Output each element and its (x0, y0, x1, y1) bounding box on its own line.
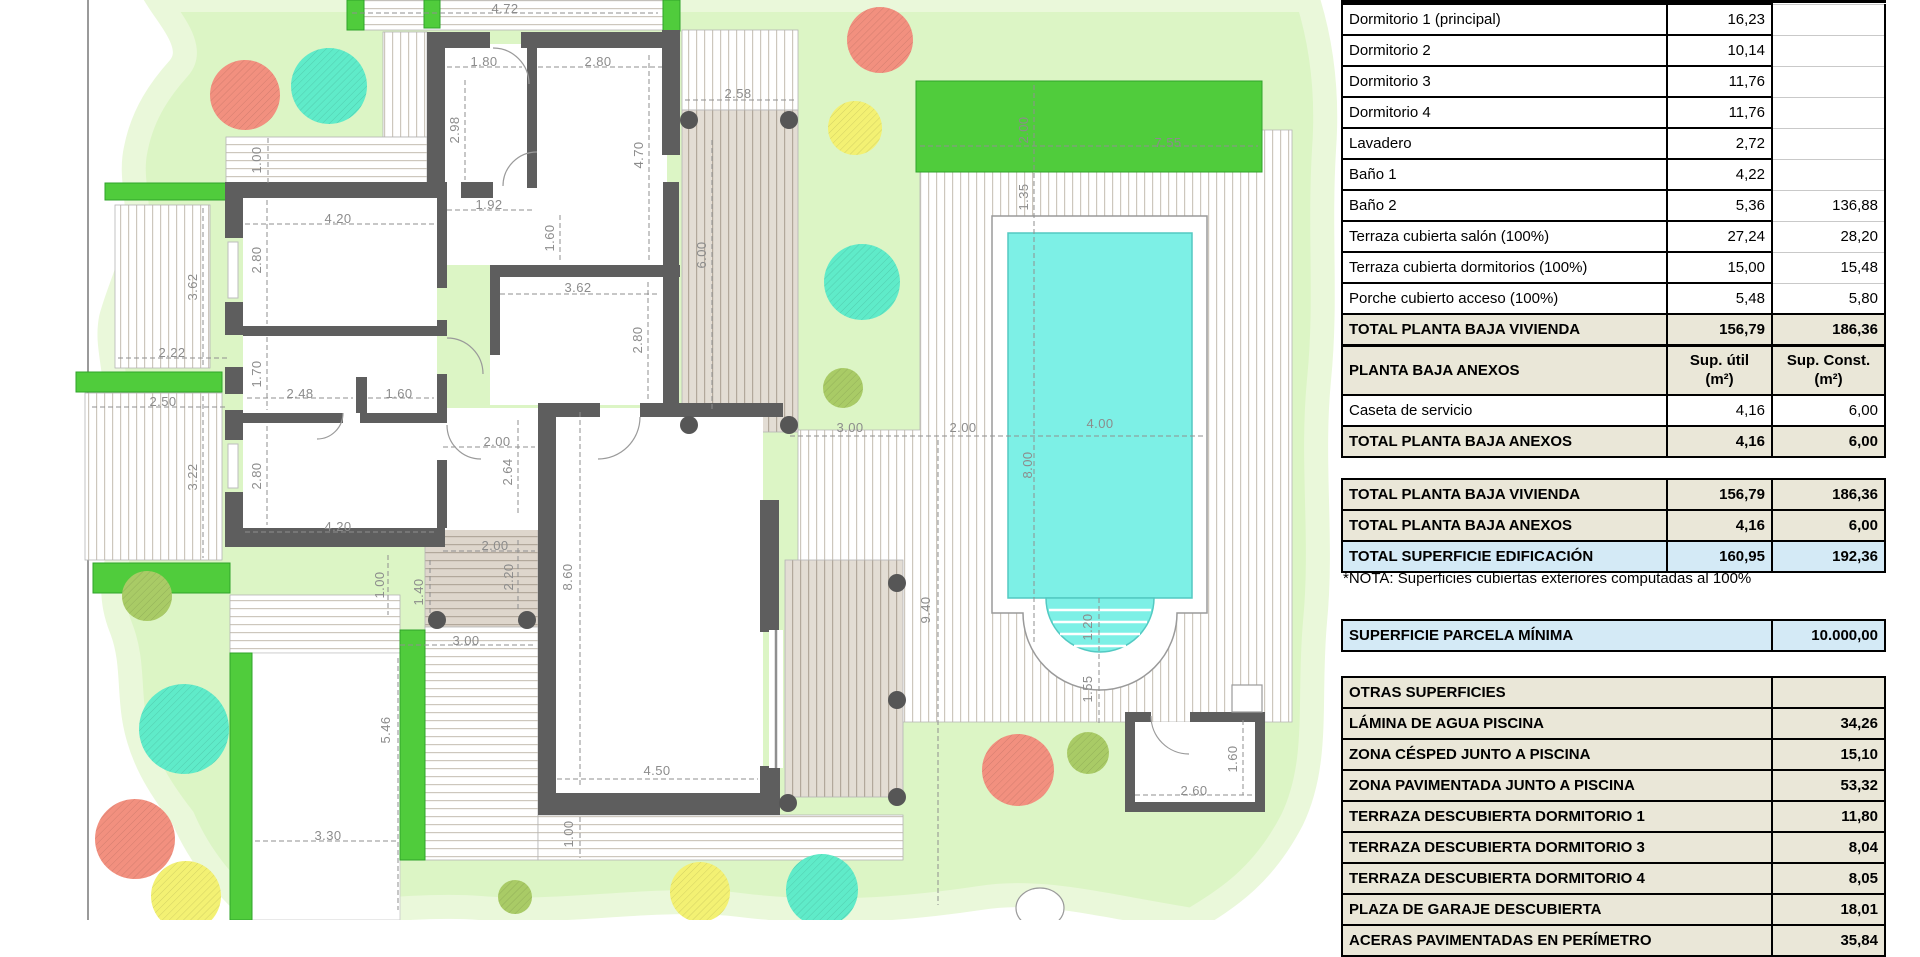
dimension-label: 2.80 (249, 463, 264, 490)
table-superficie-parcela: SUPERFICIE PARCELA MÍNIMA10.000,00 (1341, 619, 1886, 652)
dimension-label: 2.20 (501, 564, 516, 591)
table-cell: 2,72 (1667, 128, 1772, 159)
tree-hatch (982, 734, 1054, 806)
tree-hatch (828, 101, 882, 155)
table-cell: TERRAZA DESCUBIERTA DORMITORIO 4 (1342, 863, 1772, 894)
dimension-label: 1.70 (249, 361, 264, 388)
dimension-label: 2.50 (150, 394, 177, 409)
table-row: TOTAL PLANTA BAJA ANEXOS4,166,00 (1342, 426, 1885, 457)
post (888, 691, 906, 709)
table-cell: 160,95 (1667, 541, 1772, 572)
table-cell: ACERAS PAVIMENTADAS EN PERÍMETRO (1342, 925, 1772, 956)
table-cell: Baño 1 (1342, 159, 1667, 190)
table-cell: 15,10 (1772, 739, 1885, 770)
table-cell (1772, 128, 1885, 159)
dimension-label: 1.00 (372, 572, 387, 599)
table-cell: Dormitorio 3 (1342, 66, 1667, 97)
post (518, 611, 536, 629)
table-row: OTRAS SUPERFICIES (1342, 677, 1885, 708)
table-row: Lavadero2,72 (1342, 128, 1885, 159)
table-cell (1772, 677, 1885, 708)
table-row: TOTAL SUPERFICIE EDIFICACIÓN160,95192,36 (1342, 541, 1885, 572)
dimension-label: 2.58 (725, 86, 752, 101)
table-cell: 11,76 (1667, 97, 1772, 128)
table-cell: Sup. Const. (m²) (1772, 346, 1885, 395)
floorplan-sheet: { "plan": { "colors": { "garden": "#dcf5… (0, 0, 1920, 920)
dimension-label: 2.80 (249, 247, 264, 274)
table-row: ZONA CÉSPED JUNTO A PISCINA15,10 (1342, 739, 1885, 770)
dimension-label: 4.70 (631, 142, 646, 169)
dimension-label: 1.40 (411, 579, 426, 606)
table-row: Terraza cubierta dormitorios (100%)15,00… (1342, 252, 1885, 283)
table-cell: 16,23 (1667, 4, 1772, 35)
tree-hatch (210, 60, 280, 130)
dimension-label: 1.60 (1225, 746, 1240, 773)
table-row: Dormitorio 1 (principal)16,23 (1342, 4, 1885, 35)
table-cell: TOTAL PLANTA BAJA ANEXOS (1342, 426, 1667, 457)
table-cell: 4,22 (1667, 159, 1772, 190)
table-cell: 186,36 (1772, 479, 1885, 510)
table-cell: 156,79 (1667, 479, 1772, 510)
table-cell: Baño 2 (1342, 190, 1667, 221)
table-cell: 27,24 (1667, 221, 1772, 252)
table-cell: 10.000,00 (1772, 620, 1885, 651)
dimension-label: 4.72 (492, 1, 519, 16)
dimension-label: 8.00 (1020, 452, 1035, 479)
table-row: ZONA PAVIMENTADA JUNTO A PISCINA53,32 (1342, 770, 1885, 801)
table-cell: 10,14 (1667, 35, 1772, 66)
table-cell: 5,48 (1667, 283, 1772, 314)
dimension-label: 2.80 (630, 327, 645, 354)
table-cell: Terraza cubierta dormitorios (100%) (1342, 252, 1667, 283)
table-cell: 11,80 (1772, 801, 1885, 832)
dimension-label: 1.35 (1016, 184, 1031, 211)
table-cell: Dormitorio 1 (principal) (1342, 4, 1667, 35)
dimension-label: 2.00 (484, 434, 511, 449)
table-cell (1772, 159, 1885, 190)
dimension-label: 1.00 (249, 147, 264, 174)
table-cell: Terraza cubierta salón (100%) (1342, 221, 1667, 252)
dimension-label: 9.40 (918, 597, 933, 624)
table-cell: 5,80 (1772, 283, 1885, 314)
table-cell: 18,01 (1772, 894, 1885, 925)
table-cell: TOTAL PLANTA BAJA VIVIENDA (1342, 314, 1667, 345)
areas-table-panel: Dormitorio 1 (principal)16,23Dormitorio … (1341, 0, 1901, 920)
table-cell: 186,36 (1772, 314, 1885, 345)
table-cell: Dormitorio 2 (1342, 35, 1667, 66)
tree-hatch (1067, 732, 1109, 774)
dimension-label: 6.00 (694, 242, 709, 269)
table-cell: Lavadero (1342, 128, 1667, 159)
post (780, 416, 798, 434)
table-cell (1772, 97, 1885, 128)
table-cell: 6,00 (1772, 426, 1885, 457)
glass-door (769, 630, 783, 768)
dimension-label: 4.20 (325, 519, 352, 534)
dimension-label: 1.60 (386, 386, 413, 401)
table-row: Baño 25,36136,88 (1342, 190, 1885, 221)
dimension-label: 1.00 (561, 821, 576, 848)
table-row: Dormitorio 411,76 (1342, 97, 1885, 128)
table-cell: 4,16 (1667, 426, 1772, 457)
dimension-label: 2.22 (159, 345, 186, 360)
post (888, 574, 906, 592)
table-cell: Sup. útil (m²) (1667, 346, 1772, 395)
table-cell: LÁMINA DE AGUA PISCINA (1342, 708, 1772, 739)
table-cell: TOTAL SUPERFICIE EDIFICACIÓN (1342, 541, 1667, 572)
dimension-label: 2.48 (287, 386, 314, 401)
table-cell: 136,88 (1772, 190, 1885, 221)
table-cell: Porche cubierto acceso (100%) (1342, 283, 1667, 314)
acera-south (538, 815, 903, 860)
table-cell: Caseta de servicio (1342, 395, 1667, 426)
terraza-cubierta-dormitorios (682, 110, 798, 432)
table-cell: 5,36 (1667, 190, 1772, 221)
dimension-label: 4.20 (325, 211, 352, 226)
dimension-label: 2.60 (1181, 783, 1208, 798)
dimension-label: 1.80 (471, 54, 498, 69)
tree-hatch (498, 880, 532, 914)
table-row: TOTAL PLANTA BAJA VIVIENDA156,79186,36 (1342, 314, 1885, 345)
table-cell: SUPERFICIE PARCELA MÍNIMA (1342, 620, 1772, 651)
table-cell: OTRAS SUPERFICIES (1342, 677, 1772, 708)
tree-hatch (823, 368, 863, 408)
table-cell: 156,79 (1667, 314, 1772, 345)
walkway-west-salon (425, 627, 538, 860)
dimension-label: 5.46 (378, 717, 393, 744)
table-cell: 4,16 (1667, 395, 1772, 426)
table-cell: 8,05 (1772, 863, 1885, 894)
caseta-annex (1232, 685, 1262, 712)
table-cell: ZONA PAVIMENTADA JUNTO A PISCINA (1342, 770, 1772, 801)
table-row: TERRAZA DESCUBIERTA DORMITORIO 111,80 (1342, 801, 1885, 832)
dimension-label: 2.00 (950, 420, 977, 435)
dimension-label: 1.60 (542, 225, 557, 252)
table-resumen-totales: TOTAL PLANTA BAJA VIVIENDA156,79186,36TO… (1341, 478, 1886, 573)
table-row: TOTAL PLANTA BAJA VIVIENDA156,79186,36 (1342, 479, 1885, 510)
table-cell: 6,00 (1772, 510, 1885, 541)
post (680, 111, 698, 129)
dimension-label: 2.64 (500, 459, 515, 486)
dimension-label: 2.98 (447, 117, 462, 144)
table-row: SUPERFICIE PARCELA MÍNIMA10.000,00 (1342, 620, 1885, 651)
table-otras-superficies: OTRAS SUPERFICIESLÁMINA DE AGUA PISCINA3… (1341, 676, 1886, 957)
table-cell (1772, 4, 1885, 35)
table-cell: TERRAZA DESCUBIERTA DORMITORIO 3 (1342, 832, 1772, 863)
table-cell: TERRAZA DESCUBIERTA DORMITORIO 1 (1342, 801, 1772, 832)
terraza-dormitorio-3 (85, 393, 222, 560)
table-row: Caseta de servicio4,166,00 (1342, 395, 1885, 426)
table-cell: 11,76 (1667, 66, 1772, 97)
tree-hatch (847, 7, 913, 73)
table-cell: TOTAL PLANTA BAJA VIVIENDA (1342, 479, 1667, 510)
table-cell: 6,00 (1772, 395, 1885, 426)
table-cell: TOTAL PLANTA BAJA ANEXOS (1342, 510, 1667, 541)
table-cell: 15,48 (1772, 252, 1885, 283)
dimension-label: 3.30 (315, 828, 342, 843)
table-cell: 8,04 (1772, 832, 1885, 863)
tree-hatch (670, 862, 730, 920)
table-cell: 15,00 (1667, 252, 1772, 283)
table-cell: Dormitorio 4 (1342, 97, 1667, 128)
dimension-label: 2.80 (585, 54, 612, 69)
tree-hatch (95, 799, 175, 879)
zona-cesped-piscina (916, 81, 1262, 172)
post (780, 111, 798, 129)
dimension-label: 3.62 (565, 280, 592, 295)
table-cell: PLANTA BAJA ANEXOS (1342, 346, 1667, 395)
site-plan-drawing: 4.721.802.802.984.702.581.921.604.202.80… (0, 0, 1341, 920)
table-cell: ZONA CÉSPED JUNTO A PISCINA (1342, 739, 1772, 770)
table-planta-baja-vivienda: Dormitorio 1 (principal)16,23Dormitorio … (1341, 3, 1886, 346)
table-cell (1772, 35, 1885, 66)
table-row: TERRAZA DESCUBIERTA DORMITORIO 38,04 (1342, 832, 1885, 863)
walkway-garage (230, 595, 400, 653)
table-row: Porche cubierto acceso (100%)5,485,80 (1342, 283, 1885, 314)
post (888, 788, 906, 806)
tree-hatch (824, 244, 900, 320)
table-row: Dormitorio 210,14 (1342, 35, 1885, 66)
dimension-label: 3.00 (453, 633, 480, 648)
table-cell: 53,32 (1772, 770, 1885, 801)
table-cell: PLAZA DE GARAJE DESCUBIERTA (1342, 894, 1772, 925)
tree-hatch (122, 571, 172, 621)
table-row: ACERAS PAVIMENTADAS EN PERÍMETRO35,84 (1342, 925, 1885, 956)
table-cell: 34,26 (1772, 708, 1885, 739)
table-row: Dormitorio 311,76 (1342, 66, 1885, 97)
dimension-label: 8.60 (560, 564, 575, 591)
table-row: PLAZA DE GARAJE DESCUBIERTA18,01 (1342, 894, 1885, 925)
table-cell: 35,84 (1772, 925, 1885, 956)
post (428, 611, 446, 629)
tree-hatch (291, 48, 367, 124)
dimension-label: 1.92 (476, 197, 503, 212)
table-row: TERRAZA DESCUBIERTA DORMITORIO 48,05 (1342, 863, 1885, 894)
dimension-label: 3.62 (185, 274, 200, 301)
post (779, 794, 797, 812)
table-cell (1772, 66, 1885, 97)
dimension-label: 3.22 (185, 464, 200, 491)
table-row: TOTAL PLANTA BAJA ANEXOS4,166,00 (1342, 510, 1885, 541)
dimension-label: 7.55 (1155, 135, 1182, 150)
post (680, 416, 698, 434)
nota-text: *NOTA: Superficies cubiertas exteriores … (1343, 570, 1751, 587)
dimension-label: 3.00 (837, 420, 864, 435)
table-cell: 192,36 (1772, 541, 1885, 572)
dimension-label: 4.00 (1087, 416, 1114, 431)
dimension-label: 2.00 (482, 538, 509, 553)
table-row: Terraza cubierta salón (100%)27,2428,20 (1342, 221, 1885, 252)
tree-hatch (139, 684, 229, 774)
table-planta-baja-anexos: PLANTA BAJA ANEXOSSup. útil (m²)Sup. Con… (1341, 345, 1886, 458)
dimension-label: 1.20 (1080, 614, 1095, 641)
terraza-cubierta-salon (785, 560, 903, 797)
table-cell: 4,16 (1667, 510, 1772, 541)
garage-plaza (252, 653, 400, 920)
table-row: PLANTA BAJA ANEXOSSup. útil (m²)Sup. Con… (1342, 346, 1885, 395)
terrace-north-strip (383, 32, 427, 137)
table-row: Baño 14,22 (1342, 159, 1885, 190)
dimension-label: 2.00 (1016, 117, 1031, 144)
table-row: LÁMINA DE AGUA PISCINA34,26 (1342, 708, 1885, 739)
table-cell: 28,20 (1772, 221, 1885, 252)
dimension-label: 1.55 (1080, 676, 1095, 703)
dimension-label: 4.50 (644, 763, 671, 778)
